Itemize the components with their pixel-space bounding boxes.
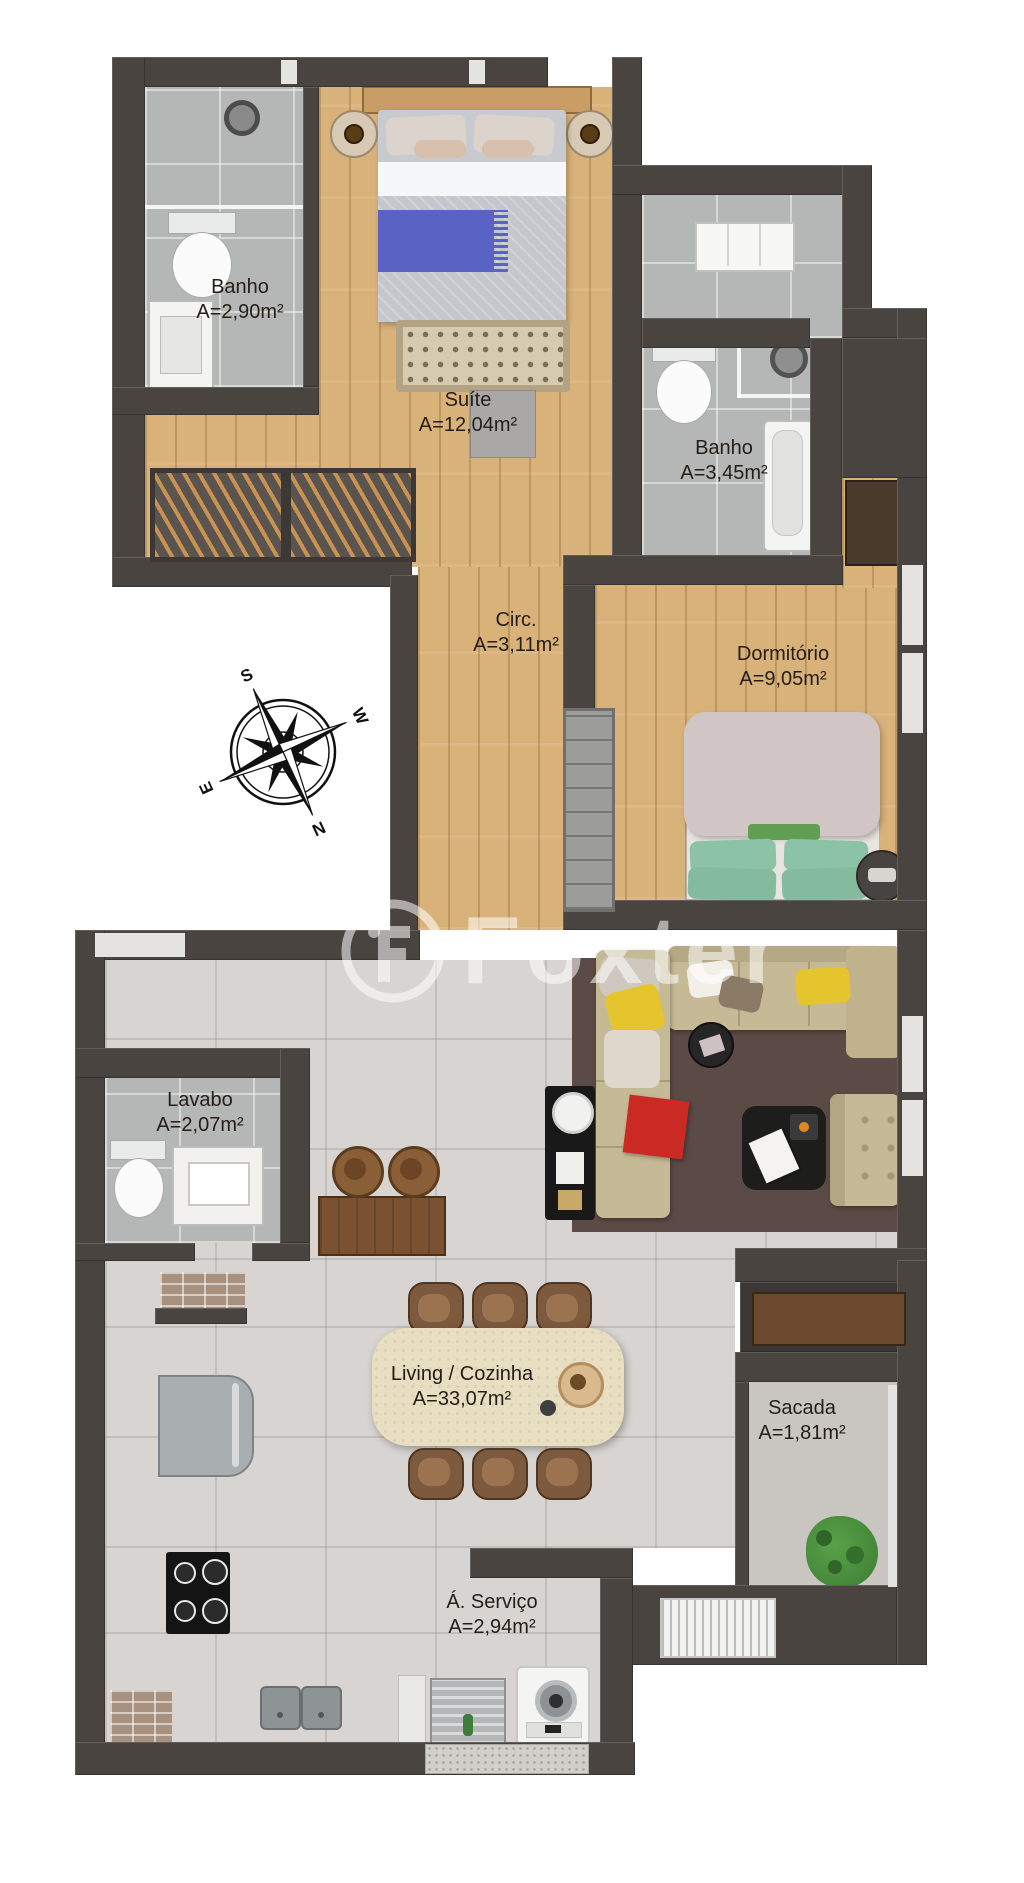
room-area: A=2,94m² [446, 1615, 537, 1640]
floor-plan: S W N E Foxter Banho A=2,90m² Suíte A=12… [0, 0, 1024, 1883]
nightstand-right [566, 110, 614, 158]
wall-lavabo-right [280, 1048, 310, 1243]
bathtub-basin [772, 430, 803, 536]
sofa-right-chaise [846, 946, 902, 1058]
room-name: Circ. [473, 608, 559, 633]
room-label-dormitorio: Dormitório A=9,05m² [737, 642, 829, 692]
sofa-throw-red [623, 1095, 690, 1160]
plant-leaf [846, 1546, 864, 1564]
chair-armrest [830, 1094, 845, 1206]
pillow-yellow [795, 966, 851, 1006]
entry-cabinet [695, 222, 795, 272]
room-label-sacada: Sacada A=1,81m² [758, 1396, 845, 1446]
console-box [558, 1190, 582, 1210]
room-label-area-servico: Á. Serviço A=2,94m² [446, 1590, 537, 1640]
room-area: A=2,07m² [156, 1113, 243, 1138]
wall-servico-top [470, 1548, 633, 1578]
bed-runner-fringe [494, 210, 508, 272]
plant-leaf [828, 1560, 842, 1574]
wall-lavabo-bottom-b [252, 1243, 310, 1261]
wardrobe-dormitorio [563, 708, 615, 912]
room-label-living-cozinha: Living / Cozinha A=33,07m² [391, 1362, 533, 1412]
chair-seat [418, 1458, 450, 1486]
room-area: A=3,11m² [473, 633, 559, 658]
pillow-white [604, 1030, 660, 1088]
shower-glass-line [737, 394, 810, 398]
wall-chunk-right [842, 338, 927, 478]
window-living-2 [902, 1100, 923, 1176]
room-area: A=1,81m² [758, 1421, 845, 1446]
bar-stool [332, 1146, 384, 1198]
suite-bed [378, 110, 566, 322]
wall-left-upper [112, 57, 145, 587]
stool-seat [400, 1158, 422, 1180]
chair-seat [482, 1458, 514, 1486]
bathtub [763, 420, 814, 552]
fridge-highlight [232, 1383, 239, 1467]
window-living-1 [902, 1016, 923, 1092]
window-sacada-glass [888, 1385, 897, 1587]
table-lamp-icon [580, 124, 600, 144]
washing-machine [516, 1666, 590, 1746]
room-area: A=3,45m² [680, 461, 767, 486]
dining-chair [536, 1448, 592, 1500]
tablet [790, 1114, 818, 1140]
bowl-large [558, 1362, 604, 1408]
wardrobe-suite-1 [150, 468, 286, 562]
toilet-bowl [656, 360, 712, 424]
burner-icon [202, 1598, 228, 1624]
cabinet-line [727, 224, 729, 266]
chair-seat [546, 1458, 578, 1486]
bed-cushion [414, 140, 466, 158]
side-table-round [688, 1022, 734, 1068]
wall-dorm-top [563, 555, 843, 585]
room-name: Banho [196, 275, 283, 300]
toilet-tank [110, 1140, 166, 1160]
sideboard [752, 1292, 906, 1346]
plant-leaf [816, 1530, 832, 1546]
service-cabinet [398, 1675, 426, 1745]
drain-icon [277, 1712, 283, 1718]
room-label-banho-suite: Banho A=2,90m² [196, 275, 283, 325]
fridge [158, 1375, 254, 1477]
bed-duvet [684, 712, 880, 836]
bed-pillow-green [687, 866, 776, 901]
wall-banho-social-right [810, 338, 842, 558]
bed-cushion [482, 140, 534, 158]
table-lamp-icon [344, 124, 364, 144]
room-name: Dormitório [737, 642, 829, 667]
room-name: Lavabo [156, 1088, 243, 1113]
dining-chair [536, 1282, 592, 1334]
cabinet-line [759, 224, 761, 266]
sink-bowl [301, 1686, 342, 1730]
window-dorm-1 [902, 565, 923, 645]
counter-brick [160, 1272, 245, 1310]
bowl-small [540, 1400, 556, 1416]
wall-counter-base [155, 1308, 247, 1324]
dorm-dresser [845, 480, 899, 566]
kitchen-sink [260, 1686, 340, 1728]
side-table-tray [868, 868, 896, 882]
toilet-bowl [114, 1158, 164, 1218]
stool-seat [344, 1158, 366, 1180]
shower-head-icon [224, 100, 260, 136]
room-label-lavabo: Lavabo A=2,07m² [156, 1088, 243, 1138]
compass-west-label: W [348, 705, 372, 728]
dining-chair [408, 1282, 464, 1334]
compass-south-label: S [238, 665, 256, 687]
window-suite-top-2 [469, 60, 485, 84]
wall-suite-right [612, 57, 642, 567]
washer-door-icon [535, 1680, 577, 1722]
nightstand-left [330, 110, 378, 158]
room-area: A=2,90m² [196, 300, 283, 325]
room-name: Banho [680, 436, 767, 461]
dining-chair [472, 1448, 528, 1500]
room-label-banho-social: Banho A=3,45m² [680, 436, 767, 486]
wall-entry-top [612, 165, 872, 195]
suite-bench [396, 320, 570, 392]
dining-chair [472, 1282, 528, 1334]
wardrobe-suite-2 [286, 468, 416, 562]
bed-lumbar-green [748, 824, 820, 840]
room-name: Á. Serviço [446, 1590, 537, 1615]
room-label-suite: Suíte A=12,04m² [419, 388, 517, 438]
wall-dorm-bottom [563, 900, 927, 930]
chair-seat [418, 1294, 450, 1322]
room-area: A=33,07m² [391, 1387, 533, 1412]
washer-panel [526, 1722, 582, 1738]
lavabo-sink-counter [172, 1146, 264, 1226]
bowl-center [570, 1374, 586, 1390]
room-name: Suíte [419, 388, 517, 413]
bar-stool [388, 1146, 440, 1198]
sink-basin [188, 1162, 250, 1206]
magazine [699, 1034, 725, 1057]
chair-buttons [852, 1106, 896, 1194]
doormat [425, 1744, 589, 1774]
wall-lavabo-top [75, 1048, 310, 1078]
coffee-table [742, 1106, 826, 1190]
ac-condenser [660, 1598, 776, 1658]
bed-runner-blue [378, 210, 494, 272]
room-area: A=9,05m² [737, 667, 829, 692]
speaker-icon [552, 1092, 594, 1134]
tablet-dot [799, 1122, 809, 1132]
window-suite-top-1 [281, 60, 297, 84]
burner-icon [174, 1562, 196, 1584]
room-name: Sacada [758, 1396, 845, 1421]
room-area: A=12,04m² [419, 413, 517, 438]
burner-icon [174, 1600, 196, 1622]
drain-icon [318, 1712, 324, 1718]
wall-circ-left [390, 575, 418, 960]
dining-chair [408, 1448, 464, 1500]
bed-sheet-fold [378, 162, 566, 196]
shower-glass-line [145, 205, 303, 209]
tv-console [545, 1086, 595, 1220]
window-dorm-2 [902, 653, 923, 733]
lounge-chair [830, 1094, 900, 1206]
compass-east-label: E [195, 779, 217, 797]
wall-entry-banho-divider [642, 318, 810, 348]
washer-door-center [549, 1694, 563, 1708]
console-drawer [556, 1152, 584, 1184]
toilet-tank [168, 212, 236, 234]
plant-sprig-icon [463, 1714, 473, 1736]
room-label-circulacao: Circ. A=3,11m² [473, 608, 559, 658]
compass-north-label: N [309, 817, 328, 839]
wall-lavabo-bottom-a [75, 1243, 195, 1261]
wall-living-right-upper [897, 930, 927, 1260]
wall-servico-right [600, 1578, 633, 1748]
washer-display [545, 1725, 561, 1733]
burner-icon [202, 1559, 228, 1585]
cooktop [166, 1552, 230, 1634]
chair-seat [546, 1294, 578, 1322]
dormitorio-bed [684, 712, 880, 898]
room-name: Living / Cozinha [391, 1362, 533, 1387]
plant [806, 1516, 878, 1588]
bar-counter [318, 1196, 446, 1256]
laundry-tank [430, 1678, 506, 1746]
wall-banho-suite-divider [303, 87, 319, 387]
wall-banho-suite-bottom [112, 387, 319, 415]
compass-rose-icon: S W N E [193, 655, 375, 853]
sink-bowl [260, 1686, 301, 1730]
chair-seat [482, 1294, 514, 1322]
door-living-entry [95, 933, 185, 957]
